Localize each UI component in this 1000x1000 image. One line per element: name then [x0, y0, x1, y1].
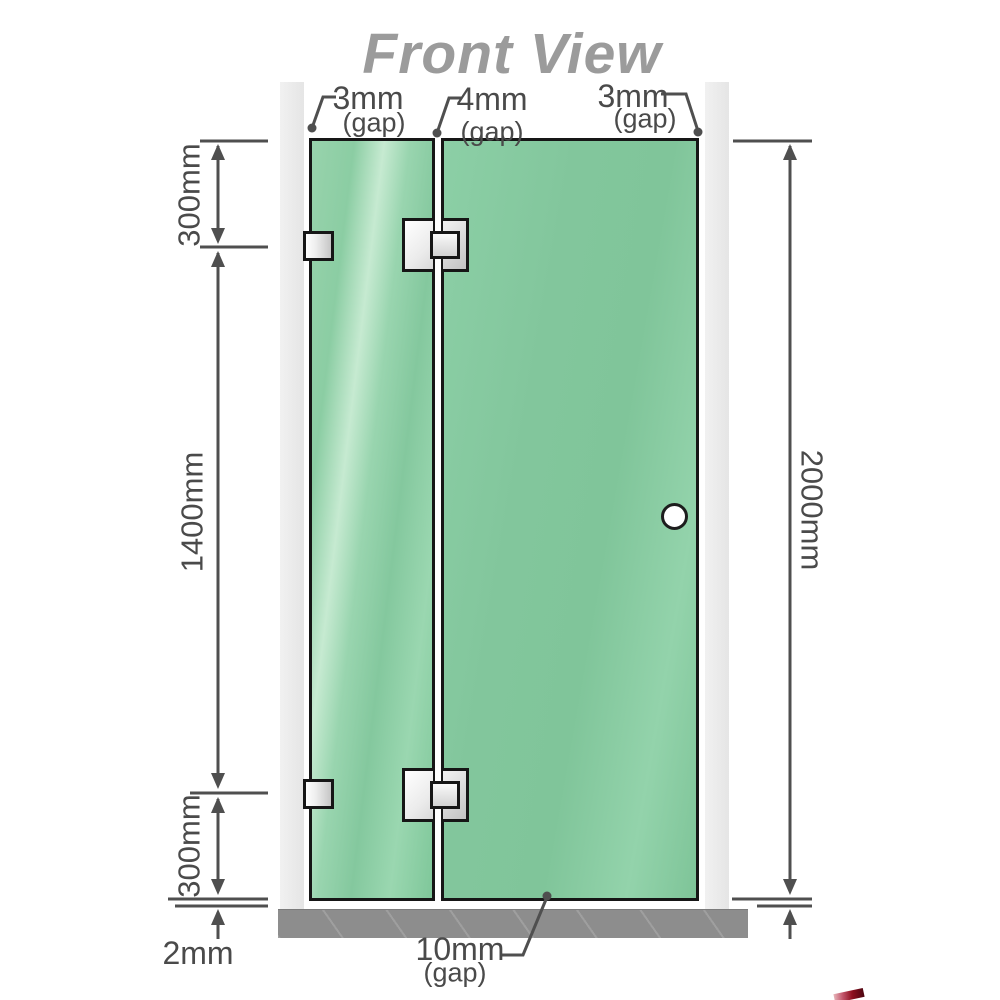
hinge-gap-strip [433, 257, 443, 272]
gap-label-top-right-qualifier: (gap) [613, 106, 676, 133]
wall-bracket-top [303, 231, 334, 261]
gap-label-top-middle-qualifier: (gap) [460, 119, 523, 146]
gap-label-top-middle-value: 4mm [456, 83, 527, 115]
gap-label-top-left-qualifier: (gap) [342, 110, 405, 137]
dimension-label-left-bottom: 300mm [174, 794, 205, 897]
dimension-lines-overlay [0, 0, 1000, 1000]
hinge-gap-strip [433, 807, 443, 822]
dimension-label-left-middle: 1400mm [177, 452, 208, 573]
diagram-canvas: Front View [0, 0, 1000, 1000]
glass-hinge-bottom [402, 768, 469, 822]
gap-label-bottom-qualifier: (gap) [423, 960, 486, 987]
leader-lines [308, 94, 703, 955]
dimension-label-floor-gap: 2mm [162, 937, 233, 969]
hinge-knuckle [430, 781, 460, 809]
wall-bracket-bottom [303, 779, 334, 809]
glass-hinge-top [402, 218, 469, 272]
hinge-knuckle [430, 231, 460, 259]
dimension-label-left-top: 300mm [174, 143, 205, 246]
dimension-label-total-height: 2000mm [797, 450, 828, 571]
